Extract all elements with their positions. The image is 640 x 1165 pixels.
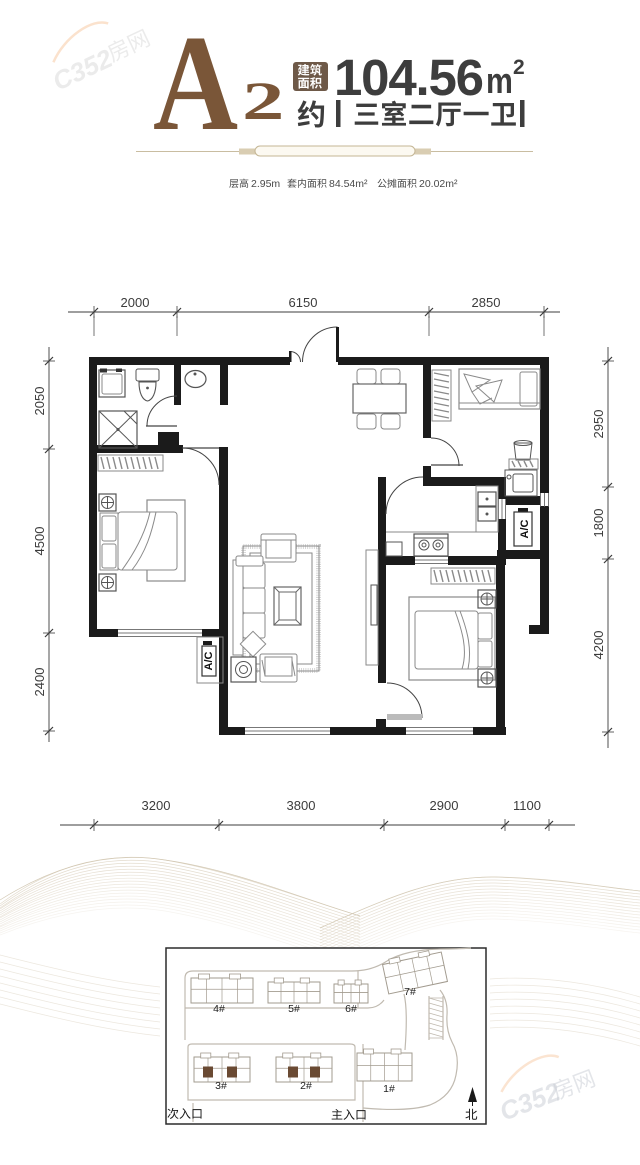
svg-text:2: 2 [242, 72, 284, 131]
svg-text:5#: 5# [288, 1003, 300, 1015]
svg-text:20.02m²: 20.02m² [419, 178, 458, 190]
svg-text:3#: 3# [215, 1080, 227, 1092]
svg-text:1#: 1# [383, 1083, 395, 1095]
svg-text:A: A [153, 7, 238, 159]
svg-text:2900: 2900 [430, 798, 459, 813]
svg-text:2050: 2050 [32, 387, 47, 416]
svg-text:2.95m: 2.95m [251, 178, 280, 190]
svg-text:2400: 2400 [32, 668, 47, 697]
svg-text:2#: 2# [300, 1080, 312, 1092]
svg-text:1100: 1100 [513, 798, 541, 813]
svg-text:2000: 2000 [121, 295, 150, 310]
svg-text:3200: 3200 [142, 798, 171, 813]
svg-text:1800: 1800 [591, 509, 606, 538]
svg-text:4200: 4200 [591, 631, 606, 660]
svg-text:2950: 2950 [591, 410, 606, 439]
svg-text:A/C: A/C [203, 651, 215, 670]
svg-text:A/C: A/C [519, 519, 531, 538]
svg-text:2: 2 [513, 56, 525, 79]
svg-text:2850: 2850 [472, 295, 501, 310]
svg-text:7#: 7# [404, 986, 416, 998]
svg-text:104.56: 104.56 [334, 49, 483, 106]
svg-text:m: m [486, 62, 513, 102]
svg-text:6#: 6# [345, 1003, 357, 1015]
svg-text:4500: 4500 [32, 527, 47, 556]
svg-text:84.54m²: 84.54m² [329, 178, 368, 190]
svg-text:3800: 3800 [287, 798, 316, 813]
svg-text:4#: 4# [213, 1003, 225, 1015]
svg-text:6150: 6150 [289, 295, 318, 310]
